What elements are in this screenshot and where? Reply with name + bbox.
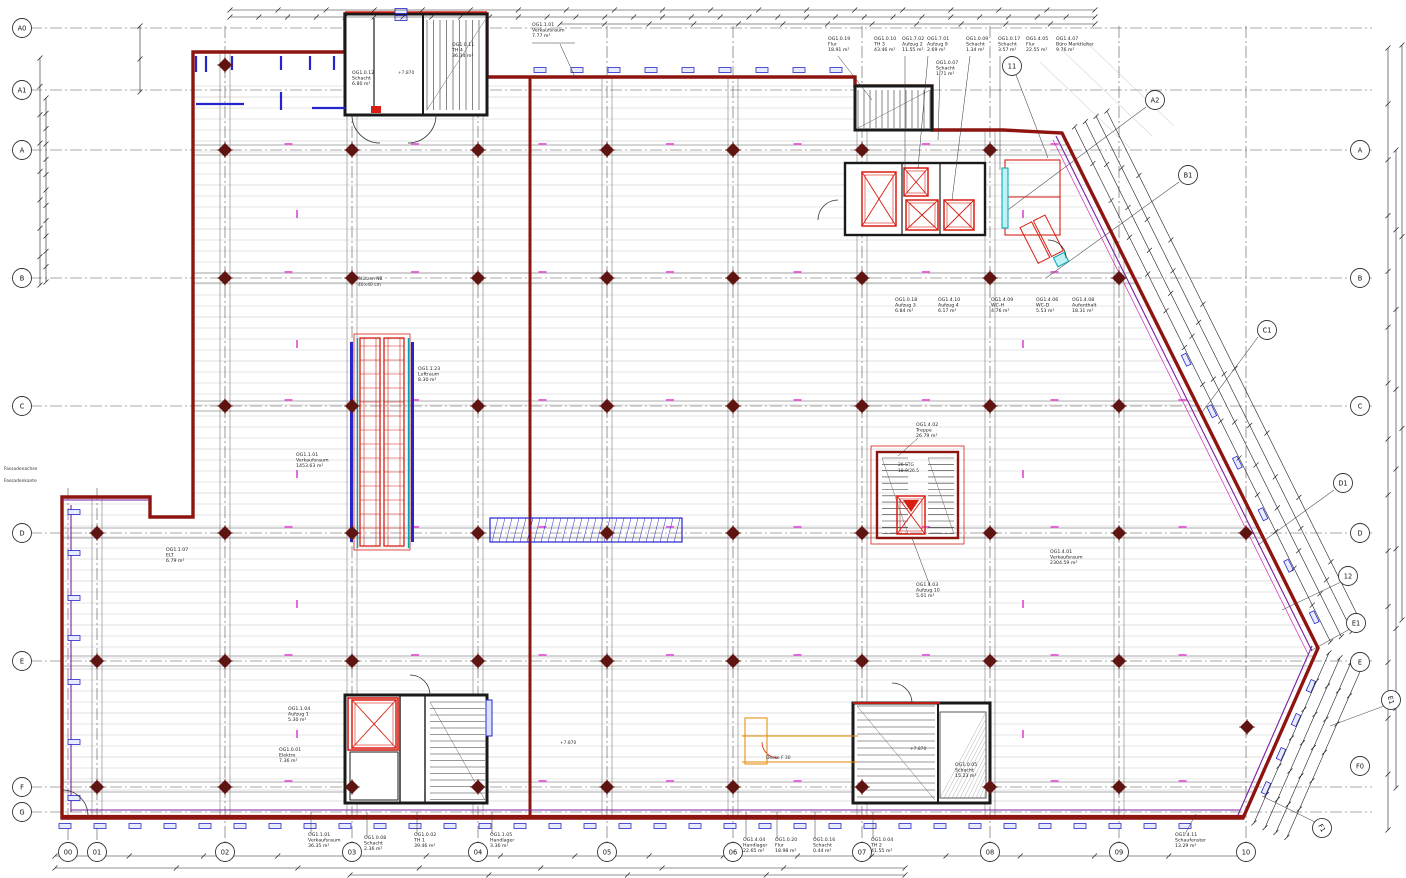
svg-text:11.55 m²: 11.55 m² [902, 47, 923, 53]
svg-text:E: E [20, 657, 24, 665]
grid-bubble-bottom-10: 10 [1237, 843, 1256, 862]
room-label: OG1.1.04Aufzug 15.30 m² [288, 706, 310, 723]
svg-text:TH 4: TH 4 [451, 48, 463, 54]
grid-bubble-left-B: B [13, 269, 32, 288]
svg-text:Schaufenster: Schaufenster [1175, 838, 1206, 844]
svg-text:OG1.1.01: OG1.1.01 [308, 832, 330, 838]
svg-text:D1: D1 [1338, 479, 1347, 487]
svg-text:OG1.4.03: OG1.4.03 [916, 582, 938, 588]
grid-bubble-bottom-04: 04 [469, 843, 488, 862]
room-label: OG1.4.02Treppe26.79 m² [915, 422, 938, 439]
svg-text:13.29 m²: 13.29 m² [1175, 843, 1196, 849]
svg-text:OG1.7.01: OG1.7.01 [927, 36, 949, 42]
dimension-text-specks [285, 143, 1187, 782]
svg-text:11: 11 [1008, 62, 1016, 70]
room-label: OG1.4.10Aufzug 46.17 m² [938, 297, 960, 314]
svg-text:E1: E1 [1352, 619, 1360, 627]
svg-text:2304.59 m²: 2304.59 m² [1050, 560, 1077, 566]
grid-bubble-left-A: A [13, 141, 32, 160]
svg-text:OG1.0.17: OG1.0.17 [998, 36, 1020, 42]
svg-text:Verkaufsraum: Verkaufsraum [1050, 555, 1083, 561]
room-label: OG1.0.17Schacht3.57 m² [998, 36, 1020, 53]
room-label: OG1.0.18Aufzug 36.84 m² [895, 297, 917, 314]
svg-text:41.55 m²: 41.55 m² [871, 848, 892, 854]
svg-text:Schacht: Schacht [352, 76, 371, 82]
ceiling-grid-lines [40, 86, 1330, 801]
svg-text:OG1.4.06: OG1.4.06 [1036, 297, 1058, 303]
svg-text:Flur: Flur [828, 42, 837, 48]
svg-text:WC-D: WC-D [1036, 303, 1050, 309]
svg-text:OG1.0.10: OG1.0.10 [874, 36, 896, 42]
svg-text:B: B [20, 274, 25, 282]
svg-text:Aufzug 1: Aufzug 1 [288, 712, 309, 718]
level-note-th4: +7.870 [398, 70, 414, 76]
svg-text:C1: C1 [1263, 326, 1272, 334]
svg-text:TH 1: TH 1 [413, 838, 425, 844]
svg-text:OG1.0.07: OG1.0.07 [936, 60, 958, 66]
svg-text:10: 10 [1242, 848, 1250, 856]
svg-text:OG1.0.09: OG1.0.09 [966, 36, 988, 42]
svg-text:C: C [1358, 402, 1363, 410]
room-label: OG1.1.01Verkaufsraum1453.63 m² [296, 452, 329, 469]
grid-bubble-right-B: B [1351, 269, 1370, 288]
window-markers [59, 9, 1319, 829]
room-label: OG1.0.08Schacht2.36 m² [364, 835, 386, 852]
svg-text:Verkaufsraum: Verkaufsraum [296, 458, 329, 464]
svg-text:TH 3: TH 3 [873, 42, 885, 48]
svg-text:02: 02 [221, 848, 229, 856]
room-label: OG1.4.05Flur22.55 m² [1026, 36, 1048, 53]
svg-text:Treppe: Treppe [915, 428, 932, 434]
grid-bubble-left-G: G [13, 803, 32, 822]
svg-text:OG1.4.02: OG1.4.02 [916, 422, 938, 428]
svg-text:06: 06 [729, 848, 737, 856]
svg-text:B: B [1358, 274, 1363, 282]
svg-text:A: A [20, 146, 25, 154]
svg-text:OG1.1.05: OG1.1.05 [490, 832, 512, 838]
svg-text:OG1.0.02: OG1.0.02 [414, 832, 436, 838]
grid-bubble-right-D: D [1351, 524, 1370, 543]
facade-note-2: Fassadenkante [4, 478, 37, 484]
svg-text:OG1.4.09: OG1.4.09 [991, 297, 1013, 303]
room-label: OG1.1.23Luftraum8.30 m² [418, 366, 440, 383]
svg-text:OG1.0.16: OG1.0.16 [813, 837, 835, 843]
svg-text:2.69 m²: 2.69 m² [927, 47, 945, 53]
svg-text:Verkaufsraum: Verkaufsraum [532, 28, 565, 34]
svg-text:Aufzug 3: Aufzug 3 [895, 303, 916, 309]
svg-text:8.30 m²: 8.30 m² [418, 377, 436, 383]
svg-text:OG1.1.23: OG1.1.23 [418, 366, 440, 372]
svg-text:Aufenthalt: Aufenthalt [1072, 303, 1097, 309]
beam-lines [60, 40, 1330, 816]
svg-text:1.34 m²: 1.34 m² [966, 47, 984, 53]
svg-text:C: C [20, 402, 25, 410]
level-note-th1: +7.870 [560, 740, 576, 746]
svg-text:D: D [19, 529, 24, 537]
svg-text:0.44 m²: 0.44 m² [813, 848, 831, 854]
room-label: OG1.7.02Aufzug 211.55 m² [902, 36, 924, 53]
grid-bubble-left-A1: A1 [13, 81, 32, 100]
svg-text:Handlager: Handlager [490, 838, 514, 844]
svg-text:OG1.4.08: OG1.4.08 [1072, 297, 1094, 303]
svg-text:Schacht: Schacht [998, 42, 1017, 48]
dimension-chains [38, 8, 1405, 878]
svg-text:Aufzug 2: Aufzug 2 [902, 42, 923, 48]
svg-text:39.46 m²: 39.46 m² [414, 843, 435, 849]
svg-text:G: G [19, 808, 24, 816]
stair-note: 26 STG [898, 462, 914, 468]
svg-text:3.57 m²: 3.57 m² [998, 47, 1016, 53]
svg-text:Luftraum: Luftraum [418, 372, 440, 378]
svg-text:36.35 m²: 36.35 m² [308, 843, 329, 849]
room-label: OG1.4.08Aufenthalt18.31 m² [1072, 297, 1097, 314]
room-label: OG1.7.01Aufzug 92.69 m² [927, 36, 949, 53]
svg-text:Aufzug 10: Aufzug 10 [916, 588, 940, 594]
grid-bubble-diag-A2-0: A2 [1146, 91, 1165, 110]
svg-text:OG1.0.01: OG1.0.01 [279, 747, 301, 753]
svg-text:Schacht: Schacht [955, 768, 974, 774]
svg-text:4.76 m²: 4.76 m² [991, 308, 1009, 314]
svg-text:WC-H: WC-H [991, 303, 1005, 309]
escalator [350, 334, 414, 550]
svg-text:OG1.4.10: OG1.4.10 [938, 297, 960, 303]
svg-text:9.76 m²: 9.76 m² [1056, 47, 1074, 53]
grid-bubble-bottom-05: 05 [598, 843, 617, 862]
room-label: OG1.4.06WC-D5.53 m² [1036, 297, 1058, 314]
room-label: OG1.0.04TH 241.55 m² [870, 837, 893, 854]
room-label: OG1.1.01Verkaufsraum7.77 m² [532, 22, 565, 39]
svg-text:Schacht: Schacht [364, 841, 383, 847]
grid-bubble-bottom-01: 01 [88, 843, 107, 862]
svg-text:7.77 m²: 7.77 m² [532, 33, 550, 39]
svg-text:Flur: Flur [775, 843, 784, 849]
svg-text:Verkaufsraum: Verkaufsraum [308, 838, 341, 844]
svg-text:07: 07 [858, 848, 866, 856]
svg-text:OG1.4.04: OG1.4.04 [743, 837, 765, 843]
grid-bubble-diag-E1-5: E1 [1347, 614, 1366, 633]
room-label: OG1.0.20Flur18.98 m² [775, 837, 797, 854]
svg-text:18.91 m²: 18.91 m² [828, 47, 849, 53]
column-note-2: 40×40 cm [358, 282, 381, 288]
svg-text:OG1.0.12: OG1.0.12 [352, 70, 374, 76]
room-label: OG1.0.02TH 139.46 m² [413, 832, 436, 849]
grid-bubble-diag-B1-1: B1 [1179, 166, 1198, 185]
svg-text:05: 05 [603, 848, 611, 856]
svg-text:OG1.1.01: OG1.1.01 [532, 22, 554, 28]
svg-text:12: 12 [1344, 572, 1352, 580]
svg-text:00: 00 [64, 848, 72, 856]
svg-text:ELT: ELT [166, 553, 174, 559]
room-label: OG1.4.07Büro Marktleiter9.76 m² [1056, 36, 1094, 53]
svg-text:Flur: Flur [1026, 42, 1035, 48]
svg-text:1453.63 m²: 1453.63 m² [296, 463, 323, 469]
stair-treads [427, 20, 954, 800]
svg-text:OG1.0.11: OG1.0.11 [452, 42, 474, 48]
column-note-1: Stützen NB [358, 276, 383, 282]
grid-bubble-right-A: A [1351, 141, 1370, 160]
grid-bubble-bottom-08: 08 [981, 843, 1000, 862]
grid-bubble-bottom-07: 07 [853, 843, 872, 862]
svg-text:26.79 m²: 26.79 m² [916, 433, 937, 439]
svg-text:Schacht: Schacht [966, 42, 985, 48]
grid-bubble-diag-F1-7: F1 [1309, 815, 1335, 841]
grid-bubble-right-C: C [1351, 397, 1370, 416]
svg-text:3.36 m²: 3.36 m² [490, 843, 508, 849]
annotation-notes: 26 STG 18.9/26.5 +7.870 +7.870 +7.870 De… [4, 70, 926, 761]
grid-bubble-left-F: F [13, 778, 32, 797]
svg-text:08: 08 [986, 848, 994, 856]
svg-text:15.23 m²: 15.23 m² [955, 773, 976, 779]
svg-text:B1: B1 [1184, 171, 1193, 179]
svg-text:Handlager: Handlager [743, 843, 767, 849]
room-label: OG1.0.07Schacht1.71 m² [936, 60, 958, 77]
svg-text:A0: A0 [18, 24, 27, 32]
svg-text:6.84 m²: 6.84 m² [895, 308, 913, 314]
floor-plan-canvas: A0A1ABCDEFG0001020304050607080910ABCDEF0… [0, 0, 1406, 878]
svg-text:5.30 m²: 5.30 m² [288, 717, 306, 723]
grid-bubble-diag-12-4: 12 [1339, 567, 1358, 586]
svg-text:04: 04 [474, 848, 482, 856]
facade-note-1: Fassadenachse [4, 466, 38, 472]
svg-text:18.98 m²: 18.98 m² [775, 848, 796, 854]
svg-text:A: A [1358, 146, 1363, 154]
svg-text:6.17 m²: 6.17 m² [938, 308, 956, 314]
svg-text:7.36 m²: 7.36 m² [279, 758, 297, 764]
svg-text:Schacht: Schacht [936, 66, 955, 72]
svg-text:Büro Marktleiter: Büro Marktleiter [1056, 42, 1094, 48]
room-label: OG1.4.01Verkaufsraum2304.59 m² [1050, 549, 1083, 566]
svg-text:OG1.4.05: OG1.4.05 [1026, 36, 1048, 42]
svg-text:TH 2: TH 2 [870, 843, 882, 849]
room-label: OG1.1.05Handlager3.36 m² [490, 832, 514, 849]
ceiling-note: Decke F 30 [766, 755, 791, 761]
svg-text:OG1.1.01: OG1.1.01 [296, 452, 318, 458]
svg-text:5.01 m²: 5.01 m² [916, 593, 934, 599]
svg-text:6.79 m²: 6.79 m² [166, 558, 184, 564]
room-label: OG1.4.09WC-H4.76 m² [991, 297, 1013, 314]
room-label: OG1.1.07ELT6.79 m² [166, 547, 188, 564]
svg-text:OG1.7.02: OG1.7.02 [902, 36, 924, 42]
svg-text:F: F [20, 783, 24, 791]
svg-text:43.46 m²: 43.46 m² [874, 47, 895, 53]
svg-text:E: E [1358, 658, 1362, 666]
svg-text:1.71 m²: 1.71 m² [936, 71, 954, 77]
svg-text:5.53 m²: 5.53 m² [1036, 308, 1054, 314]
grid-bubble-left-A0: A0 [13, 19, 32, 38]
grid-bubble-bottom-03: 03 [343, 843, 362, 862]
floor-plan-drawing: A0A1ABCDEFG0001020304050607080910ABCDEF0… [0, 0, 1406, 878]
grid-bubble-diag-C1-2: C1 [1258, 321, 1277, 340]
svg-text:Aufzug 4: Aufzug 4 [938, 303, 959, 309]
svg-text:OG1.4.11: OG1.4.11 [1175, 832, 1197, 838]
svg-text:OG1.0.08: OG1.0.08 [364, 835, 386, 841]
room-label: OG1.0.01Elektro7.36 m² [279, 747, 301, 764]
svg-text:2.36 m²: 2.36 m² [364, 846, 382, 852]
room-label: OG1.0.09Schacht1.34 m² [966, 36, 988, 53]
grid-bubble-bottom-06: 06 [724, 843, 743, 862]
grid-axes [30, 26, 1384, 846]
svg-text:36.34 m²: 36.34 m² [452, 53, 473, 59]
svg-text:01: 01 [93, 848, 101, 856]
grid-bubble-left-C: C [13, 397, 32, 416]
grid-bubble-bottom-00: 00 [59, 843, 78, 862]
svg-text:OG1.0.20: OG1.0.20 [775, 837, 797, 843]
level-note-th2: +7.870 [910, 746, 926, 752]
room-label: OG1.1.01Verkaufsraum36.35 m² [308, 832, 341, 849]
room-label: OG1.4.11Schaufenster13.29 m² [1175, 832, 1206, 849]
room-label: OG1.4.04Handlager22.65 m² [743, 837, 767, 854]
svg-text:OG1.1.04: OG1.1.04 [288, 706, 310, 712]
grid-bubble-diag-D1-3: D1 [1334, 474, 1353, 493]
grid-bubble-bottom-09: 09 [1110, 843, 1129, 862]
grid-bubble-left-E: E [13, 652, 32, 671]
grid-bubble-bottom-02: 02 [216, 843, 235, 862]
svg-text:A1: A1 [18, 86, 27, 94]
svg-text:OG1.0.05: OG1.0.05 [955, 762, 977, 768]
room-label: OG1.4.03Aufzug 105.01 m² [916, 582, 940, 599]
svg-text:18.9/26.5: 18.9/26.5 [898, 468, 919, 474]
svg-text:OG1.4.01: OG1.4.01 [1050, 549, 1072, 555]
svg-text:OG1.0.04: OG1.0.04 [871, 837, 893, 843]
grid-bubble-left-D: D [13, 524, 32, 543]
svg-text:OG1.0.19: OG1.0.19 [828, 36, 850, 42]
svg-text:D: D [1357, 529, 1362, 537]
svg-text:OG1.4.07: OG1.4.07 [1056, 36, 1078, 42]
svg-text:22.55 m²: 22.55 m² [1026, 47, 1047, 53]
svg-text:OG1.1.07: OG1.1.07 [166, 547, 188, 553]
svg-text:Aufzug 9: Aufzug 9 [927, 42, 948, 48]
svg-text:F0: F0 [1356, 762, 1364, 770]
svg-text:18.31 m²: 18.31 m² [1072, 308, 1093, 314]
svg-text:09: 09 [1115, 848, 1123, 856]
svg-text:03: 03 [348, 848, 356, 856]
room-label: OG1.0.19Flur18.91 m² [828, 36, 850, 53]
grid-bubble-right-F0: F0 [1351, 757, 1370, 776]
grid-bubble-diag-E1-6: E1 [1379, 688, 1402, 711]
room-label: OG1.0.10TH 343.46 m² [873, 36, 896, 53]
svg-text:Elektro: Elektro [279, 753, 296, 759]
svg-text:22.65 m²: 22.65 m² [743, 848, 764, 854]
svg-text:OG1.0.18: OG1.0.18 [895, 297, 917, 303]
svg-text:A2: A2 [1151, 96, 1160, 104]
svg-text:Schacht: Schacht [813, 843, 832, 849]
room-label: OG1.0.16Schacht0.44 m² [813, 837, 835, 854]
svg-text:6.80 m²: 6.80 m² [352, 81, 370, 87]
grid-bubble-right-E: E [1351, 653, 1370, 672]
grid-bubble-diag-11-8: 11 [1003, 57, 1022, 76]
